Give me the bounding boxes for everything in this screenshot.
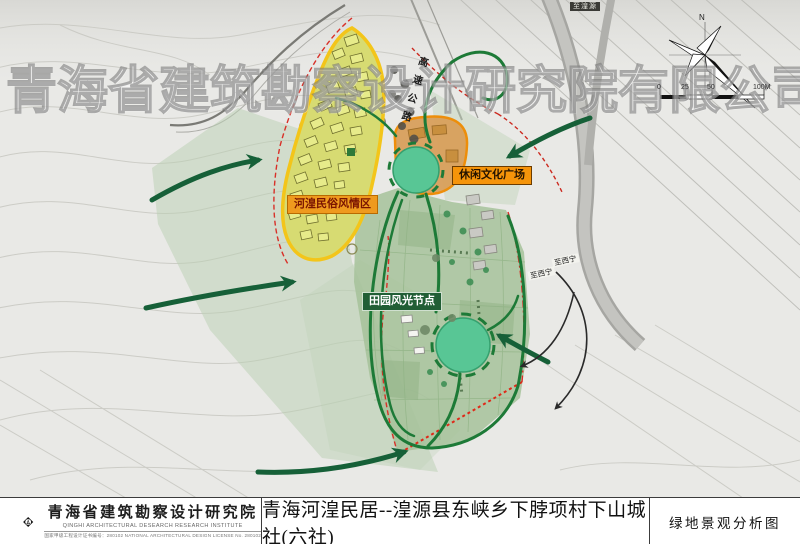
institute-cell: 青海省建筑勘察设计研究院 QINGHI ARCHITECTURAL DESEAR… (0, 498, 262, 544)
institute-logo (22, 503, 34, 541)
drawing-title: 绿地景观分析图 (669, 512, 781, 532)
scale-tick-0: 0 (657, 84, 661, 91)
label-pastoral-node: 田园风光节点 (362, 292, 442, 311)
project-title-cell: 青海河湟民居--湟源县东峡乡下脖项村下山城社(六社) (262, 498, 650, 544)
label-folk-custom-zone: 河湟民俗风情区 (287, 195, 378, 214)
project-title: 青海河湟民居--湟源县东峡乡下脖项村下山城社(六社) (262, 495, 649, 544)
label-road-destination-top: 至湟源 (570, 2, 600, 11)
drawing-title-cell: 绿地景观分析图 (650, 498, 800, 544)
scale-tick-50: 50 (707, 84, 715, 91)
compass-north-label: N (699, 13, 705, 22)
institute-license: 国家甲级工程设计证书编号：280102 NATIONAL ARCHITECTUR… (44, 531, 261, 540)
scale-tick-100m: 100M (753, 84, 771, 91)
title-block: 青海省建筑勘察设计研究院 QINGHI ARCHITECTURAL DESEAR… (0, 497, 800, 544)
institute-name-en: QINGHI ARCHITECTURAL DESEARCH RESEARCH I… (63, 523, 243, 529)
label-leisure-plaza: 休闲文化广场 (452, 166, 532, 185)
institute-name-cn: 青海省建筑勘察设计研究院 (48, 504, 258, 522)
green-space-analysis-drawing: 青海省建筑勘察设计研究院有限公司 河湟民俗风情区 休闲文化广场 田园风光节点 高… (0, 0, 800, 544)
scale-tick-25: 25 (681, 84, 689, 91)
site-plan-map (0, 0, 800, 497)
